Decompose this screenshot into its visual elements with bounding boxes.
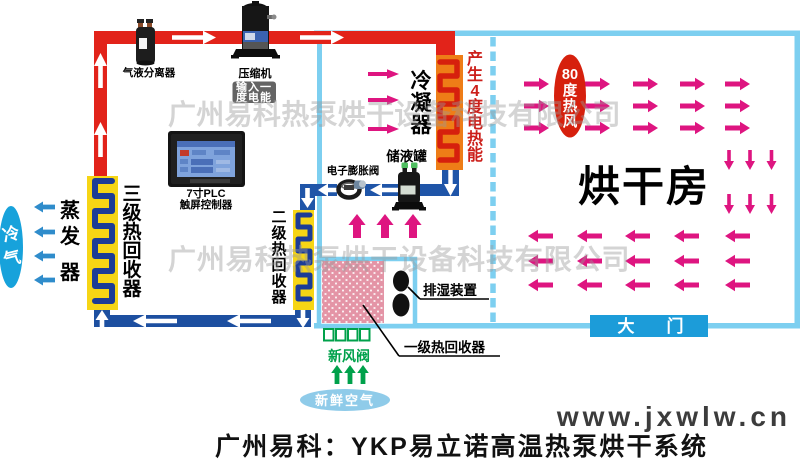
svg-text:80: 80 (562, 67, 578, 83)
svg-text:热: 热 (467, 129, 483, 148)
svg-text:广州易科热泵烘干设备科技有限公司: 广州易科热泵烘干设备科技有限公司 (168, 244, 630, 275)
svg-text:二: 二 (271, 209, 286, 226)
svg-text:冷: 冷 (411, 69, 432, 93)
svg-text:气液分离器: 气液分离器 (122, 66, 176, 79)
svg-text:电子膨胀阀: 电子膨胀阀 (327, 164, 380, 177)
svg-text:7寸PLC: 7寸PLC (186, 186, 225, 200)
svg-text:蒸: 蒸 (60, 198, 80, 222)
svg-text:广州易科：YKP易立诺高温热泵烘干系统: 广州易科：YKP易立诺高温热泵烘干系统 (215, 432, 708, 460)
svg-text:烘干房: 烘干房 (578, 163, 710, 210)
svg-text:排湿装置: 排湿装置 (423, 282, 477, 298)
svg-text:触屏控制器: 触屏控制器 (179, 198, 233, 211)
svg-text:级: 级 (122, 201, 141, 224)
svg-text:级: 级 (271, 224, 287, 242)
svg-text:生: 生 (467, 65, 483, 84)
svg-text:热: 热 (122, 220, 141, 243)
svg-text:能: 能 (467, 145, 483, 164)
svg-text:新风阀: 新风阀 (328, 348, 370, 364)
svg-text:储液罐: 储液罐 (385, 148, 427, 164)
svg-text:新鲜空气: 新鲜空气 (315, 393, 375, 408)
svg-text:回: 回 (122, 240, 141, 262)
svg-text:大: 大 (618, 316, 635, 336)
svg-text:一级热回收器: 一级热回收器 (404, 339, 485, 355)
svg-text:器: 器 (121, 278, 142, 300)
svg-text:器: 器 (59, 261, 81, 284)
svg-text:www.jxwlw.cn: www.jxwlw.cn (556, 401, 791, 432)
svg-text:产: 产 (467, 49, 483, 68)
svg-text:压缩机: 压缩机 (239, 66, 272, 80)
svg-text:度: 度 (563, 82, 578, 100)
svg-text:广州易科热泵烘干设备科技有限公司: 广州易科热泵烘干设备科技有限公司 (168, 99, 621, 130)
svg-text:三: 三 (122, 184, 141, 205)
svg-text:发: 发 (59, 224, 81, 248)
svg-text:4: 4 (471, 83, 480, 100)
svg-text:器: 器 (270, 289, 287, 306)
svg-text:收: 收 (122, 258, 141, 281)
svg-text:门: 门 (667, 316, 684, 336)
